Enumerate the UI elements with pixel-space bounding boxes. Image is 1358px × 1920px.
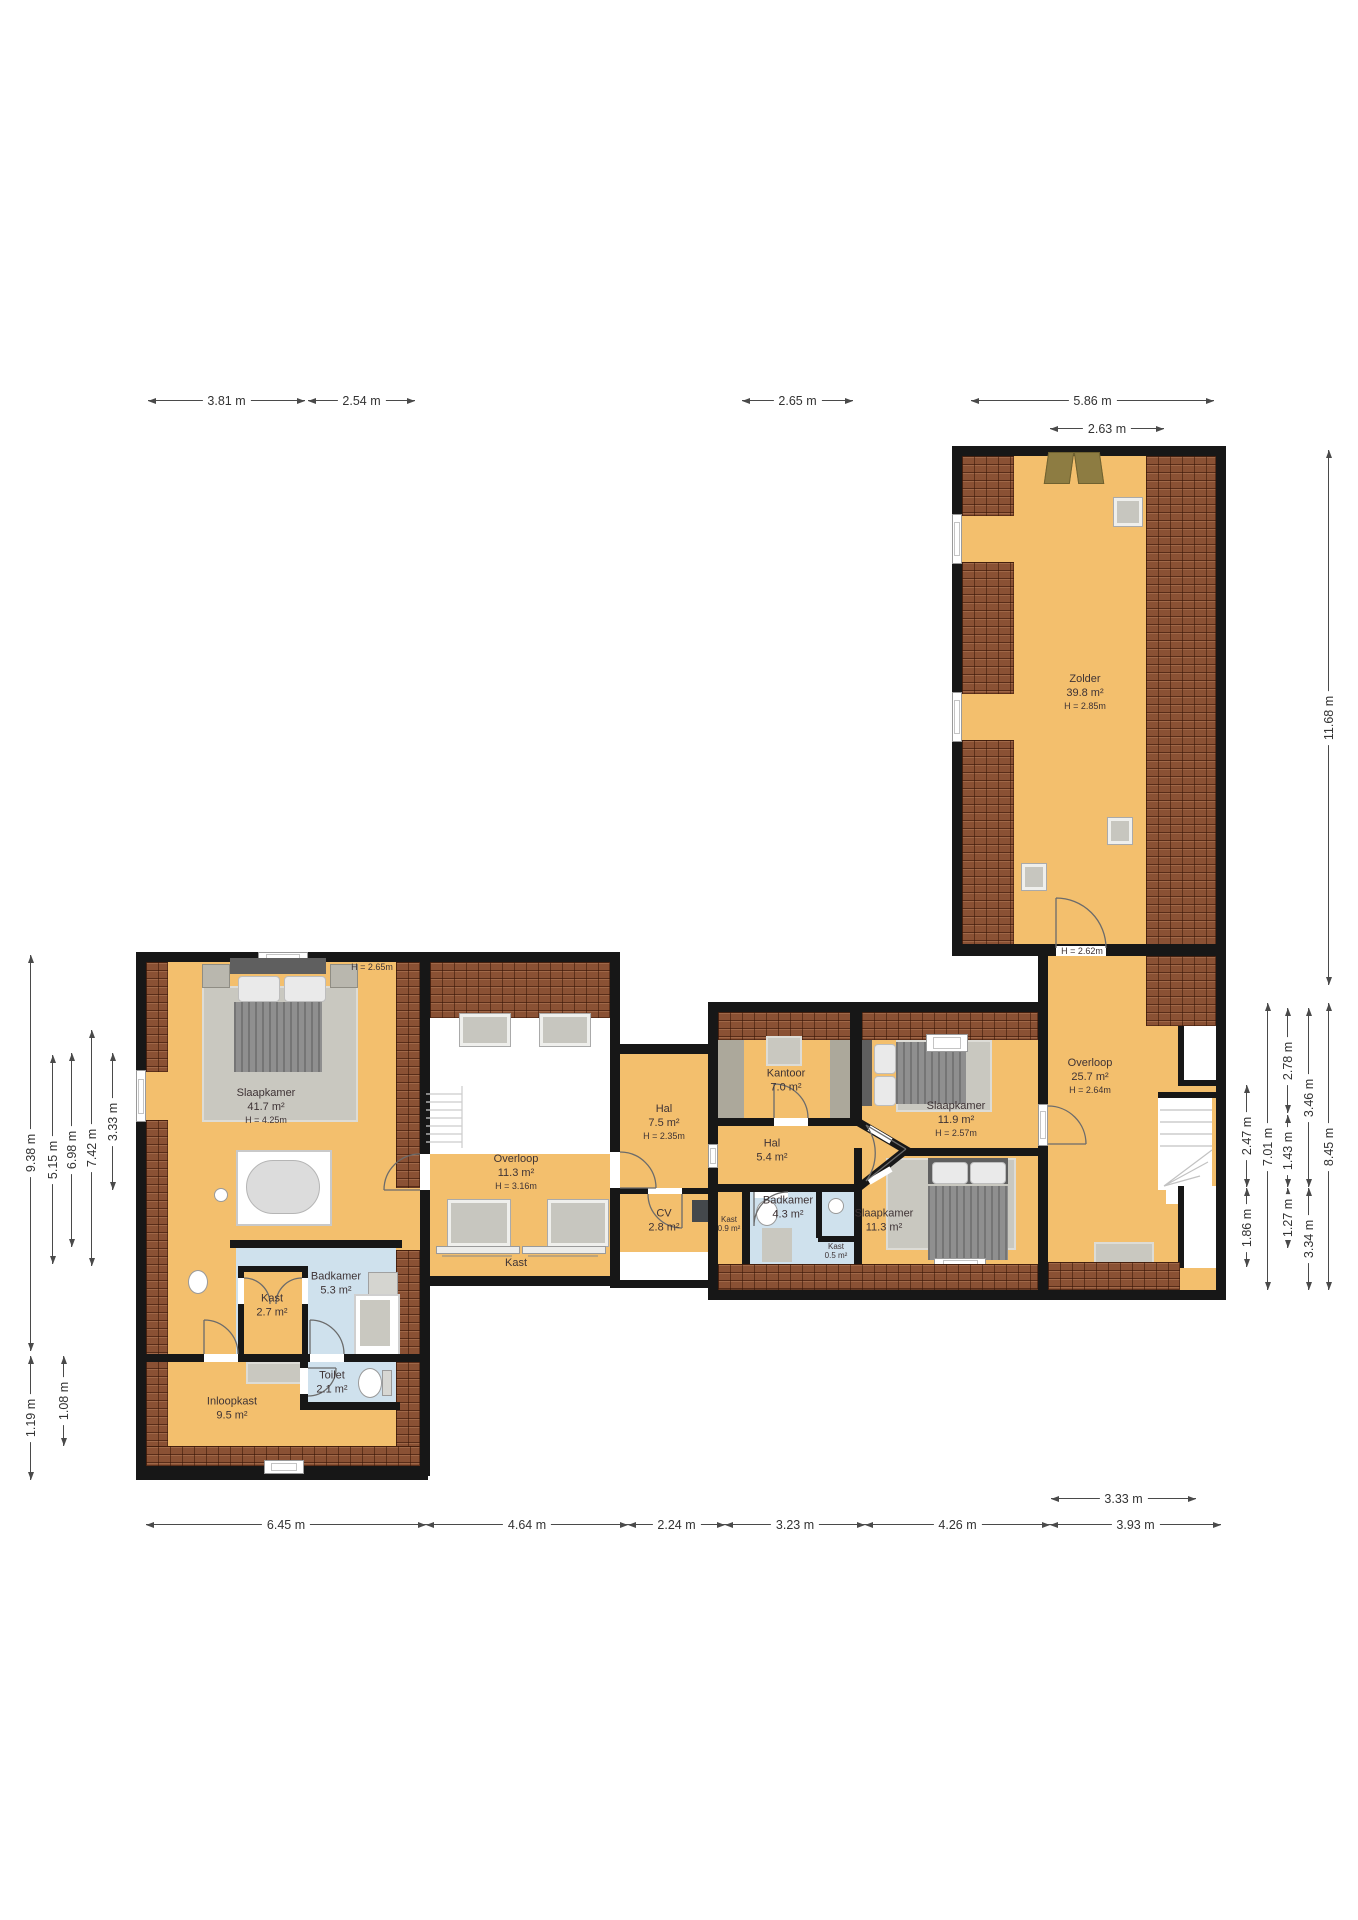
bed bbox=[928, 1186, 1008, 1260]
bathtub-inner bbox=[246, 1160, 320, 1214]
roof-hatch bbox=[1146, 456, 1216, 946]
dimension: 6.45 m bbox=[146, 1524, 426, 1525]
wall bbox=[136, 952, 146, 1480]
door-opening bbox=[204, 1354, 238, 1362]
room-label-badkamer-43: Badkamer4.3 m² bbox=[763, 1194, 813, 1223]
wall bbox=[420, 1276, 618, 1286]
wall bbox=[230, 1240, 402, 1248]
room-label-badkamer-53: Badkamer5.3 m² bbox=[311, 1270, 361, 1299]
roof-hatch bbox=[146, 1120, 168, 1450]
wall bbox=[850, 1012, 862, 1124]
door-opening bbox=[310, 1354, 344, 1362]
dimension: 1.27 m bbox=[1287, 1188, 1288, 1248]
dimension: 2.63 m bbox=[1050, 428, 1164, 429]
dimension: 1.19 m bbox=[30, 1356, 31, 1480]
rug bbox=[766, 1036, 802, 1066]
room-label-kast-27: Kast2.7 m² bbox=[256, 1292, 287, 1321]
skylight bbox=[1108, 818, 1132, 844]
room-label-inloopkast: Inloopkast9.5 m² bbox=[207, 1395, 257, 1424]
room-label-overloop-groot: Overloop25.7 m²H = 2.64m bbox=[1068, 1056, 1113, 1096]
wall bbox=[718, 1184, 854, 1192]
sink bbox=[188, 1270, 208, 1294]
door-opening bbox=[302, 1278, 308, 1304]
dimension: 11.68 m bbox=[1328, 450, 1329, 985]
wall bbox=[1158, 1092, 1216, 1098]
door-opening bbox=[648, 1188, 682, 1194]
pillow bbox=[874, 1076, 896, 1106]
room-label-kast-05: Kast0.5 m² bbox=[825, 1242, 848, 1260]
dimension: 5.86 m bbox=[971, 400, 1214, 401]
bathroom-cabinet bbox=[368, 1272, 398, 1296]
wall bbox=[300, 1402, 400, 1410]
room-label-toilet: Toilet2.1 m² bbox=[316, 1369, 347, 1398]
door-opening bbox=[300, 1368, 308, 1394]
dimension: 1.08 m bbox=[63, 1356, 64, 1446]
height-note: H = 2.62m bbox=[1061, 946, 1103, 956]
dimension: 2.54 m bbox=[308, 400, 415, 401]
roof-hatch bbox=[962, 456, 1014, 516]
room-label-kast-klein: Kast0.9 m² bbox=[718, 1215, 741, 1233]
toilet-fixture bbox=[358, 1368, 382, 1398]
skylight bbox=[548, 1200, 608, 1246]
dimension: 2.65 m bbox=[742, 400, 853, 401]
wall bbox=[1178, 1026, 1184, 1084]
dimension: 5.15 m bbox=[52, 1055, 53, 1264]
door-opening bbox=[238, 1278, 244, 1304]
skylight bbox=[1022, 864, 1046, 890]
sliding-door-track bbox=[436, 1246, 520, 1254]
room-label-hal-boven: Hal7.5 m²H = 2.35m bbox=[643, 1102, 685, 1142]
bed-headboard bbox=[230, 958, 326, 974]
door-opening bbox=[420, 1154, 430, 1190]
nightstand bbox=[202, 964, 230, 988]
skylight bbox=[460, 1014, 510, 1046]
pillow bbox=[970, 1162, 1006, 1184]
room-label-slaapkamer-113: Slaapkamer11.3 m² bbox=[855, 1207, 914, 1236]
pillow bbox=[284, 976, 326, 1002]
dormer-window bbox=[926, 1034, 968, 1052]
dimension: 7.42 m bbox=[91, 1030, 92, 1266]
wall bbox=[1178, 1186, 1184, 1268]
wall bbox=[136, 952, 620, 962]
height-note: H = 2.65m bbox=[351, 962, 393, 972]
pillow bbox=[238, 976, 280, 1002]
dimension: 2.78 m bbox=[1287, 1008, 1288, 1113]
roof-hatch bbox=[962, 740, 1014, 946]
void bbox=[1184, 1186, 1216, 1268]
sink bbox=[214, 1188, 228, 1202]
wall bbox=[900, 1148, 1038, 1156]
roof-hatch bbox=[718, 1264, 1038, 1290]
room-label-zolder: Zolder39.8 m²H = 2.85m bbox=[1064, 672, 1106, 712]
roof-hatch bbox=[1146, 956, 1216, 1026]
wall bbox=[742, 1188, 750, 1264]
dimension: 3.81 m bbox=[148, 400, 305, 401]
room-label-slaapkamer-119: Slaapkamer11.9 m²H = 2.57m bbox=[927, 1099, 986, 1139]
window bbox=[708, 1144, 718, 1168]
dimension: 8.45 m bbox=[1328, 1003, 1329, 1290]
dimension: 3.46 m bbox=[1308, 1008, 1309, 1187]
door-opening bbox=[610, 1152, 620, 1188]
dimension: 2.24 m bbox=[628, 1524, 725, 1525]
window bbox=[136, 1070, 146, 1122]
window bbox=[952, 514, 962, 564]
chimney bbox=[1074, 452, 1104, 484]
electrical-panel bbox=[692, 1200, 708, 1222]
dimension: 3.33 m bbox=[112, 1053, 113, 1190]
pillow bbox=[932, 1162, 968, 1184]
window bbox=[264, 1460, 304, 1474]
toilet-tank bbox=[382, 1370, 392, 1396]
shower-inner bbox=[360, 1300, 390, 1346]
room-label-kantoor: Kantoor7.0 m² bbox=[767, 1067, 806, 1096]
room-label-slaapkamer-groot: Slaapkamer41.7 m²H = 4.25m bbox=[237, 1086, 296, 1126]
wall bbox=[420, 952, 430, 1476]
dimension: 7.01 m bbox=[1267, 1003, 1268, 1290]
dimension: 3.34 m bbox=[1308, 1188, 1309, 1290]
dimension: 2.47 m bbox=[1246, 1085, 1247, 1187]
dimension: 4.64 m bbox=[426, 1524, 628, 1525]
room-label-kast-band: Kast bbox=[505, 1256, 527, 1270]
dimension: 3.33 m bbox=[1051, 1498, 1196, 1499]
skylight bbox=[448, 1200, 510, 1246]
bed bbox=[234, 1002, 322, 1072]
dimension: 1.43 m bbox=[1287, 1115, 1288, 1187]
floorplan-page: Zolder39.8 m²H = 2.85m Overloop25.7 m²H … bbox=[0, 0, 1358, 1920]
wall bbox=[610, 952, 620, 1052]
dimension: 9.38 m bbox=[30, 955, 31, 1351]
chimney bbox=[1044, 452, 1074, 484]
void bbox=[1184, 1026, 1216, 1084]
window bbox=[952, 692, 962, 742]
dimension: 3.23 m bbox=[725, 1524, 865, 1525]
room-label-overloop-klein: Overloop11.3 m²H = 3.16m bbox=[494, 1152, 539, 1192]
room-label-hal-midden: Hal5.4 m² bbox=[756, 1137, 787, 1166]
shower-drain bbox=[828, 1198, 844, 1214]
void bbox=[620, 1252, 708, 1280]
wall bbox=[1178, 1080, 1216, 1086]
roof-hatch bbox=[1048, 1262, 1180, 1290]
dimension: 6.98 m bbox=[71, 1053, 72, 1247]
roof-hatch bbox=[962, 562, 1014, 694]
wall bbox=[146, 1354, 420, 1362]
pillow bbox=[874, 1044, 896, 1074]
bath-mat bbox=[762, 1228, 792, 1262]
wall bbox=[816, 1192, 822, 1238]
sloped-ceiling-strip bbox=[718, 1040, 744, 1124]
roof-hatch bbox=[430, 962, 610, 1018]
roof-hatch bbox=[146, 962, 168, 1072]
roof-hatch bbox=[396, 962, 420, 1188]
dimension: 3.93 m bbox=[1050, 1524, 1221, 1525]
window bbox=[1038, 1104, 1048, 1146]
dimension: 1.86 m bbox=[1246, 1188, 1247, 1267]
skylight bbox=[1114, 498, 1142, 526]
room-label-cv: CV2.8 m² bbox=[648, 1207, 679, 1236]
dimension: 4.26 m bbox=[865, 1524, 1050, 1525]
bed-headboard bbox=[862, 1040, 872, 1106]
staircase bbox=[1158, 1098, 1212, 1190]
sliding-door-track bbox=[522, 1246, 606, 1254]
skylight bbox=[540, 1014, 590, 1046]
door-opening bbox=[774, 1118, 808, 1126]
